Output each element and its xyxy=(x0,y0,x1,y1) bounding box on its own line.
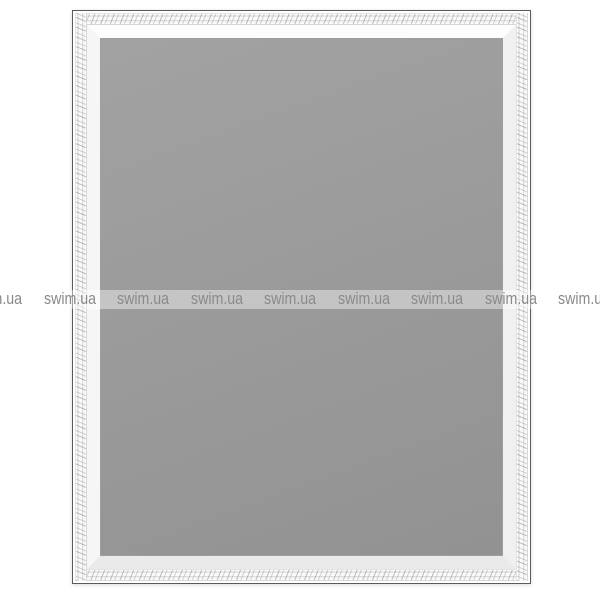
watermark-text: swim.ua xyxy=(0,290,33,309)
frame-ornament-bottom xyxy=(75,569,528,581)
watermark-text: swim.ua xyxy=(411,290,474,309)
frame-ornament-top xyxy=(75,13,528,25)
watermark-row: swim.ua swim.ua swim.ua swim.ua swim.ua … xyxy=(0,290,600,309)
watermark-text: swim.ua xyxy=(485,290,548,309)
watermark-text: swim.ua xyxy=(264,290,327,309)
watermark-text: swim.ua xyxy=(338,290,401,309)
watermark-text: swim.ua xyxy=(191,290,254,309)
watermark-text: swim.ua xyxy=(558,290,600,309)
watermark-text: swim.ua xyxy=(117,290,180,309)
watermark-band: swim.ua swim.ua swim.ua swim.ua swim.ua … xyxy=(0,290,600,309)
watermark-text: swim.ua xyxy=(44,290,107,309)
product-photo: swim.ua swim.ua swim.ua swim.ua swim.ua … xyxy=(0,0,600,600)
